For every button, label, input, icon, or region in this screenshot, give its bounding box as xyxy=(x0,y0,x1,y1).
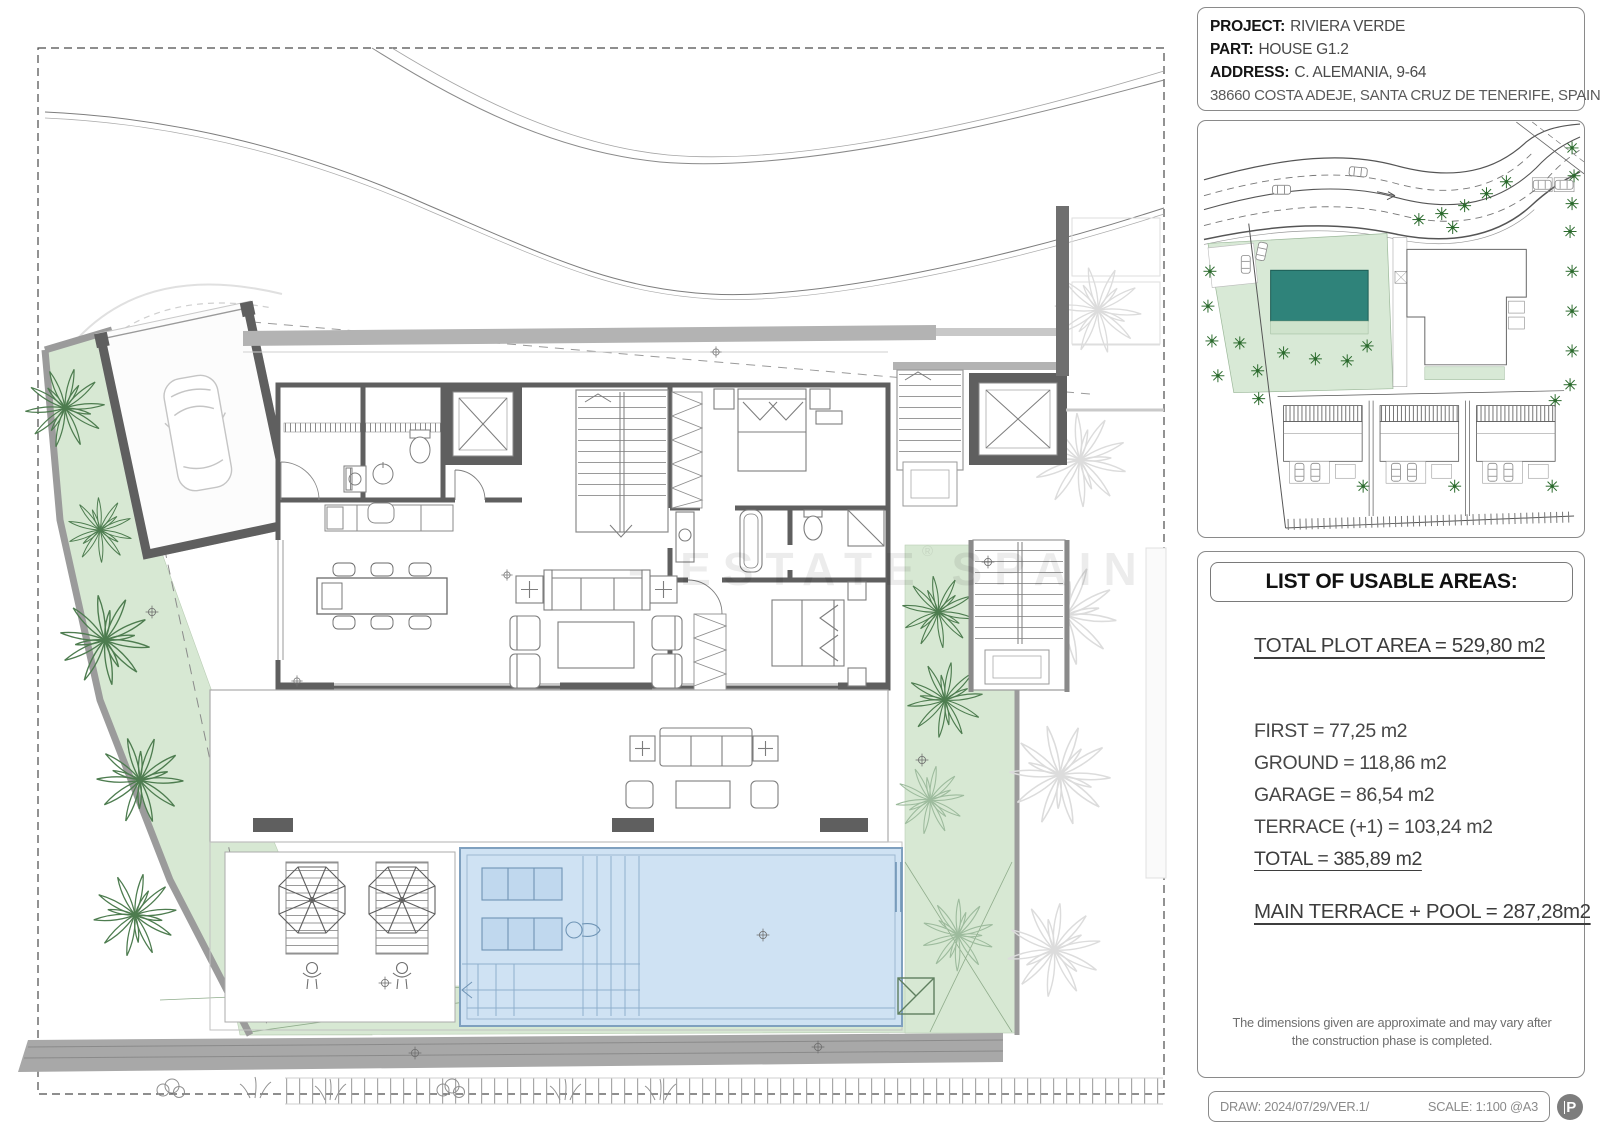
site-location-plan xyxy=(1197,120,1585,538)
part-line: PART:HOUSE G1.2 xyxy=(1210,38,1572,61)
street-band xyxy=(18,1033,1163,1104)
drawing-sheet: { "title_block": { "project_label": "PRO… xyxy=(0,0,1600,1131)
area-total: TOTAL = 385,89 m2 xyxy=(1254,848,1422,871)
neighbour-edge-faint xyxy=(1146,548,1166,878)
area-terrace: TERRACE (+1) = 103,24 m2 xyxy=(1254,816,1493,839)
area-garage: GARAGE = 86,54 m2 xyxy=(1254,784,1434,807)
svg-text:- ESTATE SPAIN: - ESTATE SPAIN xyxy=(628,543,1149,595)
elevator-shaft-exterior xyxy=(969,373,1067,465)
dimensions-note: The dimensions given are approximate and… xyxy=(1232,1014,1552,1050)
area-ground: GROUND = 118,86 m2 xyxy=(1254,752,1446,775)
site-roads xyxy=(1204,122,1584,244)
site-wall xyxy=(1056,206,1069,376)
footer-bar: DRAW: 2024/07/29/VER.1/ SCALE: 1:100 @A3 xyxy=(1208,1091,1550,1122)
site-plot-highlight xyxy=(1208,233,1393,392)
elevator-shaft xyxy=(444,383,522,465)
site-map-drawing xyxy=(1198,121,1584,536)
company-logo-icon: P xyxy=(1557,1094,1583,1120)
areas-panel: LIST OF USABLE AREAS: TOTAL PLOT AREA = … xyxy=(1197,551,1585,1078)
sun-deck xyxy=(225,852,455,1022)
stairs-internal xyxy=(576,390,668,537)
total-plot-area: TOTAL PLOT AREA = 529,80 m2 xyxy=(1254,634,1545,658)
area-first: FIRST = 77,25 m2 xyxy=(1254,720,1407,743)
areas-panel-title: LIST OF USABLE AREAS: xyxy=(1266,570,1518,594)
address-line-2: 38660 COSTA ADEJE, SANTA CRUZ DE TENERIF… xyxy=(1210,84,1572,107)
areas-panel-title-box: LIST OF USABLE AREAS: xyxy=(1210,562,1573,602)
watermark: - ESTATE SPAIN ® xyxy=(628,543,1149,595)
site-row-houses xyxy=(1278,391,1565,516)
floor-plan-drawing: - ESTATE SPAIN ® xyxy=(0,0,1175,1131)
draw-version: DRAW: 2024/07/29/VER.1/ xyxy=(1220,1099,1369,1114)
site-neighbour-building xyxy=(1407,178,1574,380)
svg-text:®: ® xyxy=(922,543,933,560)
hall-counter xyxy=(325,503,453,531)
roof-band xyxy=(243,325,936,346)
address-line: ADDRESS:C. ALEMANIA, 9-64 xyxy=(1210,61,1572,84)
ground-terrace xyxy=(210,690,888,842)
swimming-pool xyxy=(460,848,902,1026)
terrain-contours xyxy=(45,48,1164,300)
project-line: PROJECT:RIVIERA VERDE xyxy=(1210,15,1572,38)
site-pool xyxy=(1271,270,1368,321)
main-terrace-pool: MAIN TERRACE + POOL = 287,28m2 xyxy=(1254,900,1591,924)
title-block: PROJECT:RIVIERA VERDE PART:HOUSE G1.2 AD… xyxy=(1197,7,1585,111)
kitchen-island xyxy=(317,563,447,629)
scale-label: SCALE: 1:100 @A3 xyxy=(1428,1099,1538,1114)
